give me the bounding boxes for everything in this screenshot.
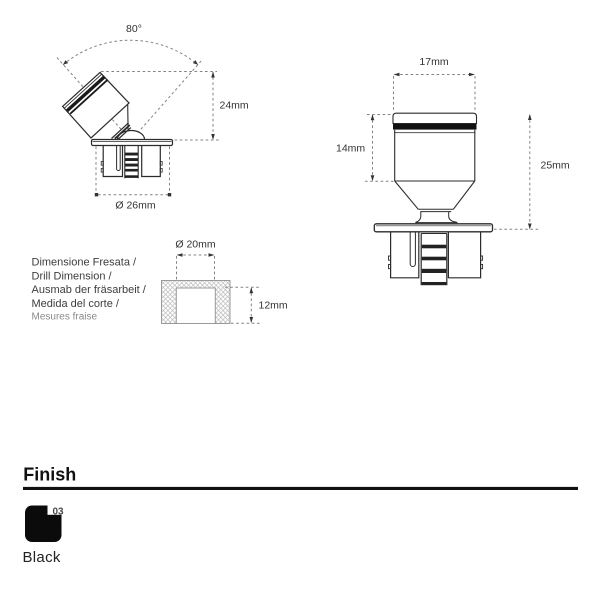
svg-text:14mm: 14mm [336,143,365,155]
svg-text:25mm: 25mm [541,160,570,172]
svg-text:Dimensione Fresata /: Dimensione Fresata / [32,257,137,269]
svg-text:Drill Dimension /: Drill Dimension / [32,270,113,282]
svg-text:03: 03 [53,507,65,518]
svg-text:Ausmab der fräsarbeit /: Ausmab der fräsarbeit / [32,284,147,296]
svg-text:Finish: Finish [23,465,76,485]
svg-text:12mm: 12mm [259,300,288,312]
svg-text:Mesures fraise: Mesures fraise [32,312,98,323]
svg-text:Ø 20mm: Ø 20mm [175,239,216,251]
svg-text:Medida del corte /: Medida del corte / [32,298,120,310]
svg-text:24mm: 24mm [220,100,249,112]
svg-text:Ø 26mm: Ø 26mm [115,200,156,212]
svg-text:17mm: 17mm [419,56,448,68]
svg-text:80°: 80° [126,23,142,35]
svg-text:Black: Black [23,549,61,566]
